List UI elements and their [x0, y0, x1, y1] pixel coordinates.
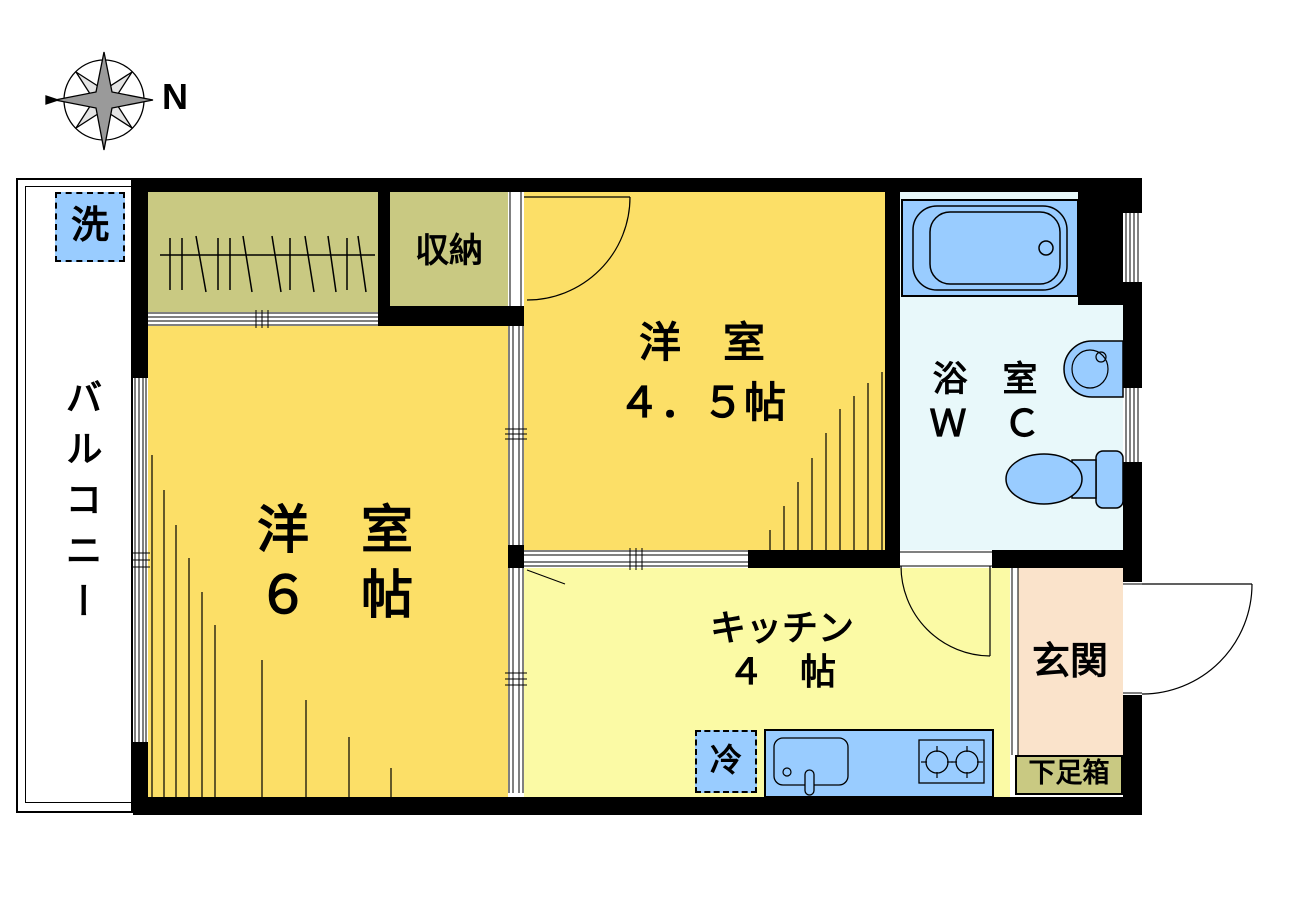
window-wc	[1123, 388, 1142, 462]
wall-45-bath	[885, 192, 900, 568]
window-right-top	[1123, 213, 1142, 282]
balcony-label: バルコニー	[52, 378, 106, 633]
wall-pipe-space	[1078, 192, 1123, 305]
fridge-label: 冷	[710, 744, 742, 778]
floor-plan: バルコニー 洗	[0, 0, 1301, 897]
bath-name: 浴 室	[932, 362, 1037, 399]
wall-top	[133, 178, 1142, 192]
wall-wc-bottom	[992, 550, 1142, 568]
compass-rose-icon	[46, 52, 153, 150]
wall-right-1	[1123, 192, 1142, 213]
entrance-label: 玄関	[1032, 643, 1108, 683]
wall-right-4	[1123, 695, 1142, 797]
room6-size: ６ 帖	[257, 570, 413, 625]
kitchen-name: キッチン	[710, 610, 854, 648]
kitchen-size: ４ 帖	[728, 654, 836, 692]
wall-right-2	[1123, 282, 1142, 388]
room45-name: 洋 室	[639, 322, 765, 366]
western-room-45	[524, 192, 885, 550]
wall-bottom	[133, 797, 1142, 815]
room45-size: ４．５帖	[618, 382, 786, 426]
shoebox-label: 下足箱	[1029, 759, 1110, 787]
wall-kitchen-top	[748, 550, 885, 568]
wall-left-lower	[133, 742, 148, 797]
wall-divider-post	[508, 545, 524, 568]
bath-wc: Ｗ Ｃ	[930, 406, 1041, 445]
wall-storage-bottom	[378, 306, 524, 326]
western-room-6	[148, 326, 508, 797]
compass-label: N	[162, 78, 188, 116]
storage-label: 収納	[415, 234, 483, 270]
room6-name: 洋 室	[257, 505, 413, 560]
wall-closet-divider	[378, 192, 390, 306]
wall-left-upper	[133, 192, 148, 378]
closet-hanger-area	[148, 192, 378, 312]
front-door	[1123, 582, 1252, 695]
washing-machine-label: 洗	[71, 207, 109, 247]
